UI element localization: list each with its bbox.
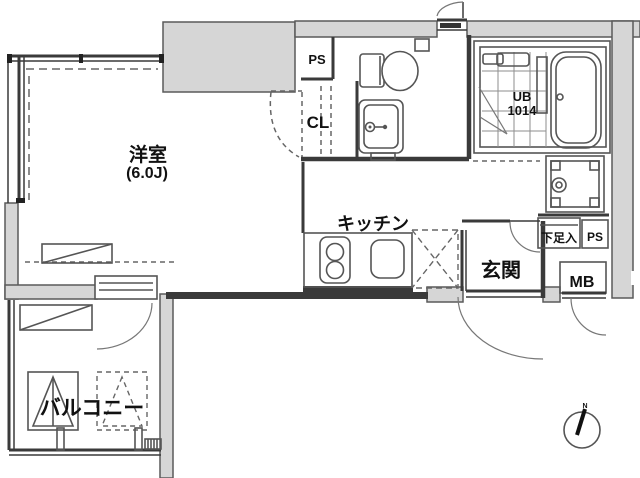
ac-unit-diagonal <box>20 305 92 330</box>
right-wall-column <box>612 21 633 298</box>
floor-plan: N 洋室 (6.0J) バルコニー キッチン 玄関 CL PS PS UB 10… <box>0 0 640 478</box>
south-wall <box>166 292 428 299</box>
living-room-size-label: (6.0J) <box>126 165 168 182</box>
north-door-sill-bar <box>440 23 461 28</box>
balcony-label: バルコニー <box>40 397 145 420</box>
kitchen-label: キッチン <box>337 214 409 234</box>
living-room-label: 洋室 <box>129 143 167 166</box>
balcony-area <box>9 300 161 455</box>
stove-burner <box>327 244 344 261</box>
basin-faucet-head <box>383 125 387 129</box>
unit-bath-inner <box>480 47 606 147</box>
window-end-mark <box>159 54 164 63</box>
laundry-corner <box>551 161 560 170</box>
balcony-door-frame <box>95 276 157 299</box>
toilet-bowl <box>382 52 418 91</box>
compass-north-label: N <box>582 403 587 410</box>
bathtub-drain <box>557 94 563 100</box>
compass: N <box>564 403 600 448</box>
laundry-corner <box>590 161 599 170</box>
laundry-box-inner <box>551 161 599 207</box>
hall-door-swing <box>510 222 540 252</box>
window-mid-mark <box>79 54 83 63</box>
closet-label: CL <box>307 113 330 132</box>
floor-plan-drawing: N 洋室 (6.0J) バルコニー キッチン 玄関 CL PS PS UB 10… <box>0 0 640 478</box>
laundry-drain-inner <box>556 182 562 188</box>
north-door-swing <box>437 2 463 16</box>
right-wall-notch <box>631 271 640 285</box>
balcony-post <box>57 428 64 450</box>
pipe-space-top-label: PS <box>308 52 326 67</box>
stove-burner <box>327 262 344 279</box>
unit-bath-size-label: 1014 <box>508 103 538 118</box>
washroom-fixtures <box>359 39 429 160</box>
window-end-mark <box>16 198 25 203</box>
kitchen-fixtures <box>304 230 458 288</box>
top-wall-band-left <box>295 21 437 37</box>
balcony-drain <box>145 439 161 449</box>
balcony-side-wall <box>160 294 173 478</box>
pipe-space-entry-label: PS <box>587 230 603 244</box>
bottom-left-wall <box>5 285 97 299</box>
laundry-corner <box>590 198 599 207</box>
laundry-drain-outer <box>552 178 566 192</box>
shoe-cabinet-label: 下足入 <box>541 231 577 245</box>
unit-bath <box>474 41 610 153</box>
laundry-corner <box>551 198 560 207</box>
top-center-wall-block <box>163 22 295 92</box>
meter-box-label: MB <box>570 274 595 291</box>
balcony-door-swing <box>97 303 152 349</box>
window-end-mark <box>7 54 12 63</box>
basin-faucet-dot <box>369 126 372 129</box>
refrigerator-space <box>412 230 458 288</box>
entrance-door-swing <box>458 297 543 359</box>
closet-door-swing <box>270 92 299 157</box>
unit-bath-label: UB <box>513 89 532 104</box>
kitchen-sink <box>371 240 404 278</box>
balcony-post <box>135 428 142 450</box>
counter-diagonal <box>42 244 112 263</box>
toilet-remote <box>415 39 429 51</box>
meter-box-door-swing <box>571 298 606 335</box>
entrance-right-wall-block <box>543 287 560 302</box>
entrance-label: 玄関 <box>481 258 521 282</box>
laundry-space <box>546 156 604 212</box>
laundry-box <box>546 156 604 212</box>
bath-shelf <box>483 54 503 64</box>
